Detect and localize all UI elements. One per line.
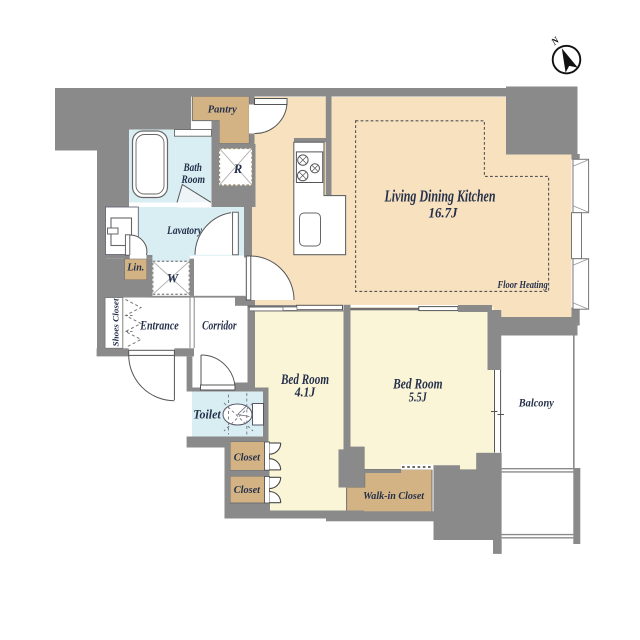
svg-text:5.5J: 5.5J [409,389,428,404]
svg-text:Entrance: Entrance [139,317,178,332]
svg-text:R: R [233,162,242,176]
svg-text:Living Dining Kitchen: Living Dining Kitchen [384,187,496,206]
svg-text:16.7J: 16.7J [429,206,458,222]
svg-text:Corridor: Corridor [202,317,237,332]
svg-text:Room: Room [181,172,206,186]
svg-text:Lin.: Lin. [126,263,144,274]
svg-text:Balcony: Balcony [518,398,555,410]
svg-text:Lavatory: Lavatory [166,223,202,237]
svg-text:Closet: Closet [234,485,261,496]
svg-text:Closet: Closet [234,453,261,464]
svg-text:Floor Heating: Floor Heating [497,279,548,291]
svg-text:Shoes Closet: Shoes Closet [111,298,121,347]
svg-text:W: W [167,272,179,286]
svg-text:Toilet: Toilet [193,408,221,422]
svg-text:Pantry: Pantry [208,103,237,115]
svg-text:Walk-in Closet: Walk-in Closet [363,490,425,502]
svg-text:4.1J: 4.1J [294,385,316,400]
